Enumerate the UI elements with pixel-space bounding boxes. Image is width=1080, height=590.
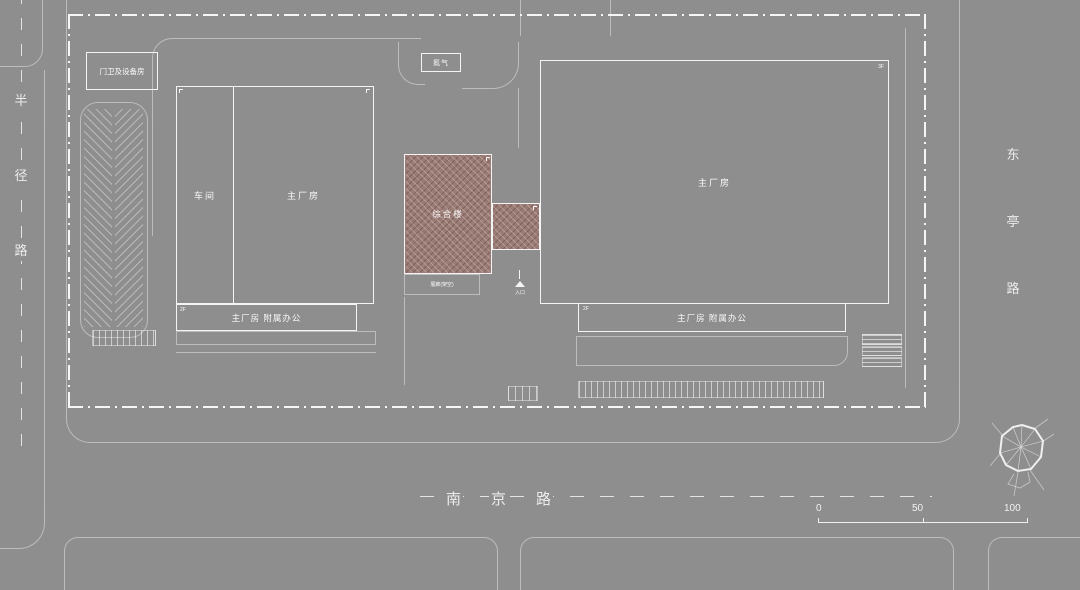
- entrance-stem: [519, 270, 520, 279]
- bike-parking-strip: [578, 381, 824, 398]
- entrance-triangle-icon: [515, 281, 525, 287]
- scale-tick-100: 100: [1004, 503, 1021, 514]
- inner-line-to-gate: [404, 297, 406, 385]
- annex-east-building: 2F 主厂房 附属办公: [578, 303, 846, 332]
- factory-east-label: 主厂房: [698, 176, 731, 189]
- corner-tick-1: [179, 89, 183, 93]
- scale-tick-50: 50: [912, 503, 923, 514]
- annex-west-floor-tag: 2F: [180, 307, 186, 313]
- factory-east-floor-tag: 3F: [878, 64, 884, 70]
- inner-line-complex-east: [518, 88, 520, 148]
- scale-bar: 0 50 100: [812, 503, 1034, 531]
- factory-west-building: 车间 主厂房: [176, 86, 374, 304]
- inner-road-east-vert: [905, 28, 907, 388]
- road-south-char-3: 路: [534, 488, 553, 509]
- boundary-top: [68, 14, 926, 16]
- factory-west-label: 主厂房: [287, 189, 320, 202]
- annex-west-building: 2F 主厂房 附属办公: [176, 304, 357, 331]
- road-east-char-3: 路: [1005, 276, 1020, 299]
- dock-strip-1: [862, 334, 902, 345]
- inner-road-loop-right: [462, 42, 519, 89]
- scale-bar-tick-end: [1027, 518, 1028, 523]
- top-entry-line-a: [520, 0, 522, 36]
- annex-west-substrip: [176, 331, 376, 345]
- gatehouse-label: 门卫及设备房: [100, 66, 145, 77]
- parking-strip-south: [92, 330, 156, 346]
- road-west-char-3: 路: [13, 238, 28, 261]
- scale-bar-tick-start: [818, 518, 819, 523]
- dock-strip-3: [862, 357, 902, 367]
- complex-building: 综合楼: [404, 154, 492, 274]
- annex-west-label: 主厂房 附属办公: [232, 312, 302, 324]
- corner-tick-3: [486, 157, 490, 161]
- road-label-east: 东 亭 路: [1000, 142, 1026, 299]
- parking-stalls-column-right: [115, 109, 143, 327]
- site-plan-drawing: 门卫及设备房 氮气 车间 主厂房 2F 主厂房 附属办公 综合楼 展廊(架空) …: [0, 0, 1080, 590]
- scale-bar-tick-mid: [923, 518, 924, 523]
- corner-tick-4: [533, 206, 537, 210]
- boundary-bottom: [68, 406, 926, 408]
- south-block-right: [988, 537, 1080, 590]
- road-label-south: 南 京 路: [444, 488, 553, 509]
- south-gate-box: [508, 386, 538, 401]
- road-east-char-2: 亭: [1005, 209, 1020, 232]
- south-block-middle: [520, 537, 954, 590]
- nitrogen-label: 氮气: [433, 58, 449, 68]
- annex-east-apron: [576, 336, 848, 366]
- annex-east-floor-tag: 2F: [583, 306, 589, 312]
- road-south-char-2: 京: [489, 488, 508, 509]
- scale-tick-0: 0: [816, 503, 822, 514]
- gatehouse-building: 门卫及设备房: [86, 52, 158, 90]
- annex-east-label: 主厂房 附属办公: [677, 312, 747, 324]
- gallery-label: 展廊(架空): [430, 281, 453, 288]
- nitrogen-station: 氮气: [421, 53, 461, 72]
- road-west-char-1: 半: [13, 88, 28, 111]
- road-east-char-1: 东: [1005, 142, 1020, 165]
- factory-east-building: 3F 主厂房: [540, 60, 889, 304]
- top-entry-line-b: [610, 0, 612, 36]
- entrance-label: 入口: [515, 289, 525, 296]
- inner-line-below-annex-west: [176, 352, 376, 354]
- boundary-left: [68, 14, 70, 408]
- gallery-strip: 展廊(架空): [404, 274, 480, 295]
- south-block-left: [64, 537, 498, 590]
- workshop-label: 车间: [194, 189, 216, 202]
- complex-label: 综合楼: [432, 208, 464, 220]
- entrance-marker: 入口: [510, 270, 530, 298]
- tree-icon: [990, 418, 1054, 496]
- road-south-char-1: 南: [444, 488, 463, 509]
- dock-strip-2: [862, 346, 902, 356]
- road-west-char-2: 径: [13, 163, 28, 186]
- corner-tick-2: [366, 89, 370, 93]
- parking-area-west: [80, 102, 148, 338]
- road-label-west: 半 径 路: [8, 88, 34, 261]
- boundary-right: [924, 14, 926, 408]
- complex-building-wing: [492, 203, 540, 250]
- parking-stalls-column-left: [84, 109, 112, 327]
